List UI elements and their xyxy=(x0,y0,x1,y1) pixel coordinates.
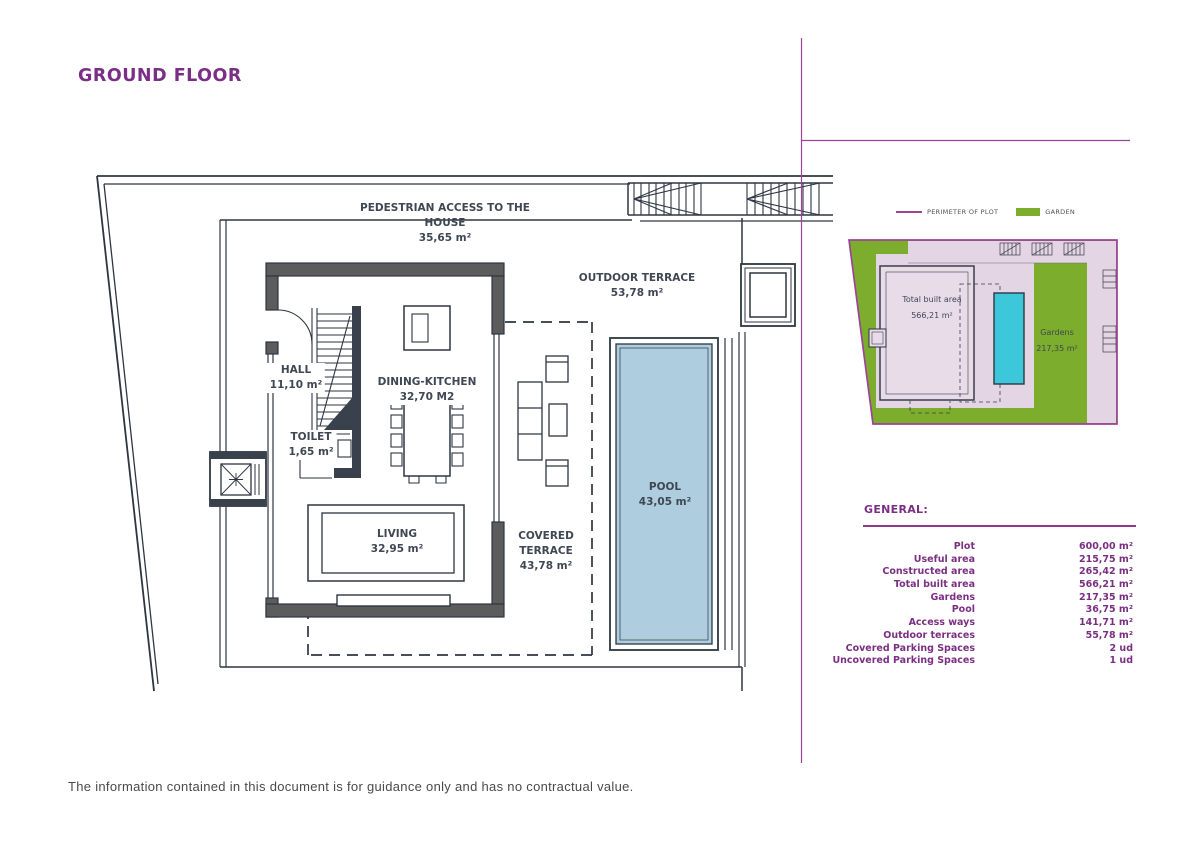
room-name: OUTDOOR TERRACE xyxy=(579,271,695,286)
row-label: Outdoor terraces xyxy=(795,630,975,643)
site-label-text: Total built area xyxy=(902,292,961,308)
room-area: 32,70 M2 xyxy=(378,390,477,405)
entry-door-arc xyxy=(278,310,312,344)
entrance-stairs xyxy=(628,183,833,221)
room-name-line2: HOUSE xyxy=(360,216,530,231)
row-value: 2 ud xyxy=(975,643,1133,656)
row-value: 566,21 m² xyxy=(975,579,1133,592)
table-row: Total built area 566,21 m² xyxy=(795,579,1133,592)
row-value: 217,35 m² xyxy=(975,592,1133,605)
site-plan-legend: PERIMETER OF PLOT GARDEN xyxy=(896,208,1075,216)
room-name: HALL xyxy=(270,363,322,378)
row-label: Covered Parking Spaces xyxy=(795,643,975,656)
room-label-toilet: TOILET 1,65 m² xyxy=(285,430,336,460)
room-name: COVERED xyxy=(518,529,574,544)
general-table: Plot 600,00 m² Useful area 215,75 m² Con… xyxy=(795,541,1133,668)
site-label-total-built-area: Total built area 566,21 m² xyxy=(902,292,961,324)
table-row: Covered Parking Spaces 2 ud xyxy=(795,643,1133,656)
general-heading: GENERAL: xyxy=(864,503,928,516)
table-row: Outdoor terraces 55,78 m² xyxy=(795,630,1133,643)
perimeter-line-swatch xyxy=(896,211,922,213)
legend-label-garden: GARDEN xyxy=(1045,208,1075,216)
row-label: Access ways xyxy=(795,617,975,630)
room-name-line2: TERRACE xyxy=(518,544,574,559)
room-name: PEDESTRIAN ACCESS TO THE xyxy=(360,201,530,216)
room-area: 32,95 m² xyxy=(371,542,423,557)
elevator xyxy=(210,452,266,506)
room-label-dining-kitchen: DINING-KITCHEN 32,70 M2 xyxy=(375,375,480,405)
site-label-area: 217,35 m² xyxy=(1036,341,1078,357)
site-pool xyxy=(994,293,1024,384)
room-name: POOL xyxy=(639,480,691,495)
room-area: 43,05 m² xyxy=(639,495,691,510)
room-area: 1,65 m² xyxy=(288,445,333,460)
room-area: 53,78 m² xyxy=(579,286,695,301)
row-label: Total built area xyxy=(795,579,975,592)
garden-swatch xyxy=(1016,208,1040,216)
table-row: Access ways 141,71 m² xyxy=(795,617,1133,630)
table-row: Uncovered Parking Spaces 1 ud xyxy=(795,655,1133,668)
terrace-furniture xyxy=(518,356,568,486)
row-label: Gardens xyxy=(795,592,975,605)
table-row: Gardens 217,35 m² xyxy=(795,592,1133,605)
room-name: TOILET xyxy=(288,430,333,445)
room-label-covered-terrace: COVERED TERRACE 43,78 m² xyxy=(518,529,574,574)
row-value: 600,00 m² xyxy=(975,541,1133,554)
disclaimer-text: The information contained in this docume… xyxy=(68,779,634,794)
floor-plan-page: GROUND FLOOR xyxy=(0,0,1200,847)
row-label: Useful area xyxy=(795,554,975,567)
table-row: Constructed area 265,42 m² xyxy=(795,566,1133,579)
row-label: Uncovered Parking Spaces xyxy=(795,655,975,668)
table-row: Useful area 215,75 m² xyxy=(795,554,1133,567)
room-name: DINING-KITCHEN xyxy=(378,375,477,390)
row-label: Plot xyxy=(795,541,975,554)
room-area: 43,78 m² xyxy=(518,559,574,574)
row-label: Constructed area xyxy=(795,566,975,579)
table-row: Plot 600,00 m² xyxy=(795,541,1133,554)
living-window xyxy=(337,595,450,606)
row-value: 55,78 m² xyxy=(975,630,1133,643)
kitchen-island xyxy=(404,306,450,350)
room-label-pedestrian-access: PEDESTRIAN ACCESS TO THE HOUSE 35,65 m² xyxy=(360,201,530,246)
room-area: 35,65 m² xyxy=(360,231,530,246)
row-value: 36,75 m² xyxy=(975,604,1133,617)
row-value: 141,71 m² xyxy=(975,617,1133,630)
row-label: Pool xyxy=(795,604,975,617)
room-label-hall: HALL 11,10 m² xyxy=(267,363,325,393)
legend-label-perimeter: PERIMETER OF PLOT xyxy=(927,208,998,216)
site-label-area: 566,21 m² xyxy=(902,308,961,324)
room-area: 11,10 m² xyxy=(270,378,322,393)
floor-plan-drawing xyxy=(0,0,1200,847)
general-divider xyxy=(863,525,1136,527)
site-label-gardens: Gardens 217,35 m² xyxy=(1036,325,1078,357)
site-stair-hatches xyxy=(1000,243,1084,255)
spa-planter xyxy=(741,264,795,326)
row-value: 1 ud xyxy=(975,655,1133,668)
room-label-pool: POOL 43,05 m² xyxy=(639,480,691,510)
table-row: Pool 36,75 m² xyxy=(795,604,1133,617)
room-name: LIVING xyxy=(371,527,423,542)
room-label-living: LIVING 32,95 m² xyxy=(368,527,426,557)
page-title: GROUND FLOOR xyxy=(78,66,242,86)
row-value: 265,42 m² xyxy=(975,566,1133,579)
row-value: 215,75 m² xyxy=(975,554,1133,567)
site-label-text: Gardens xyxy=(1036,325,1078,341)
room-label-outdoor-terrace: OUTDOOR TERRACE 53,78 m² xyxy=(579,271,695,301)
